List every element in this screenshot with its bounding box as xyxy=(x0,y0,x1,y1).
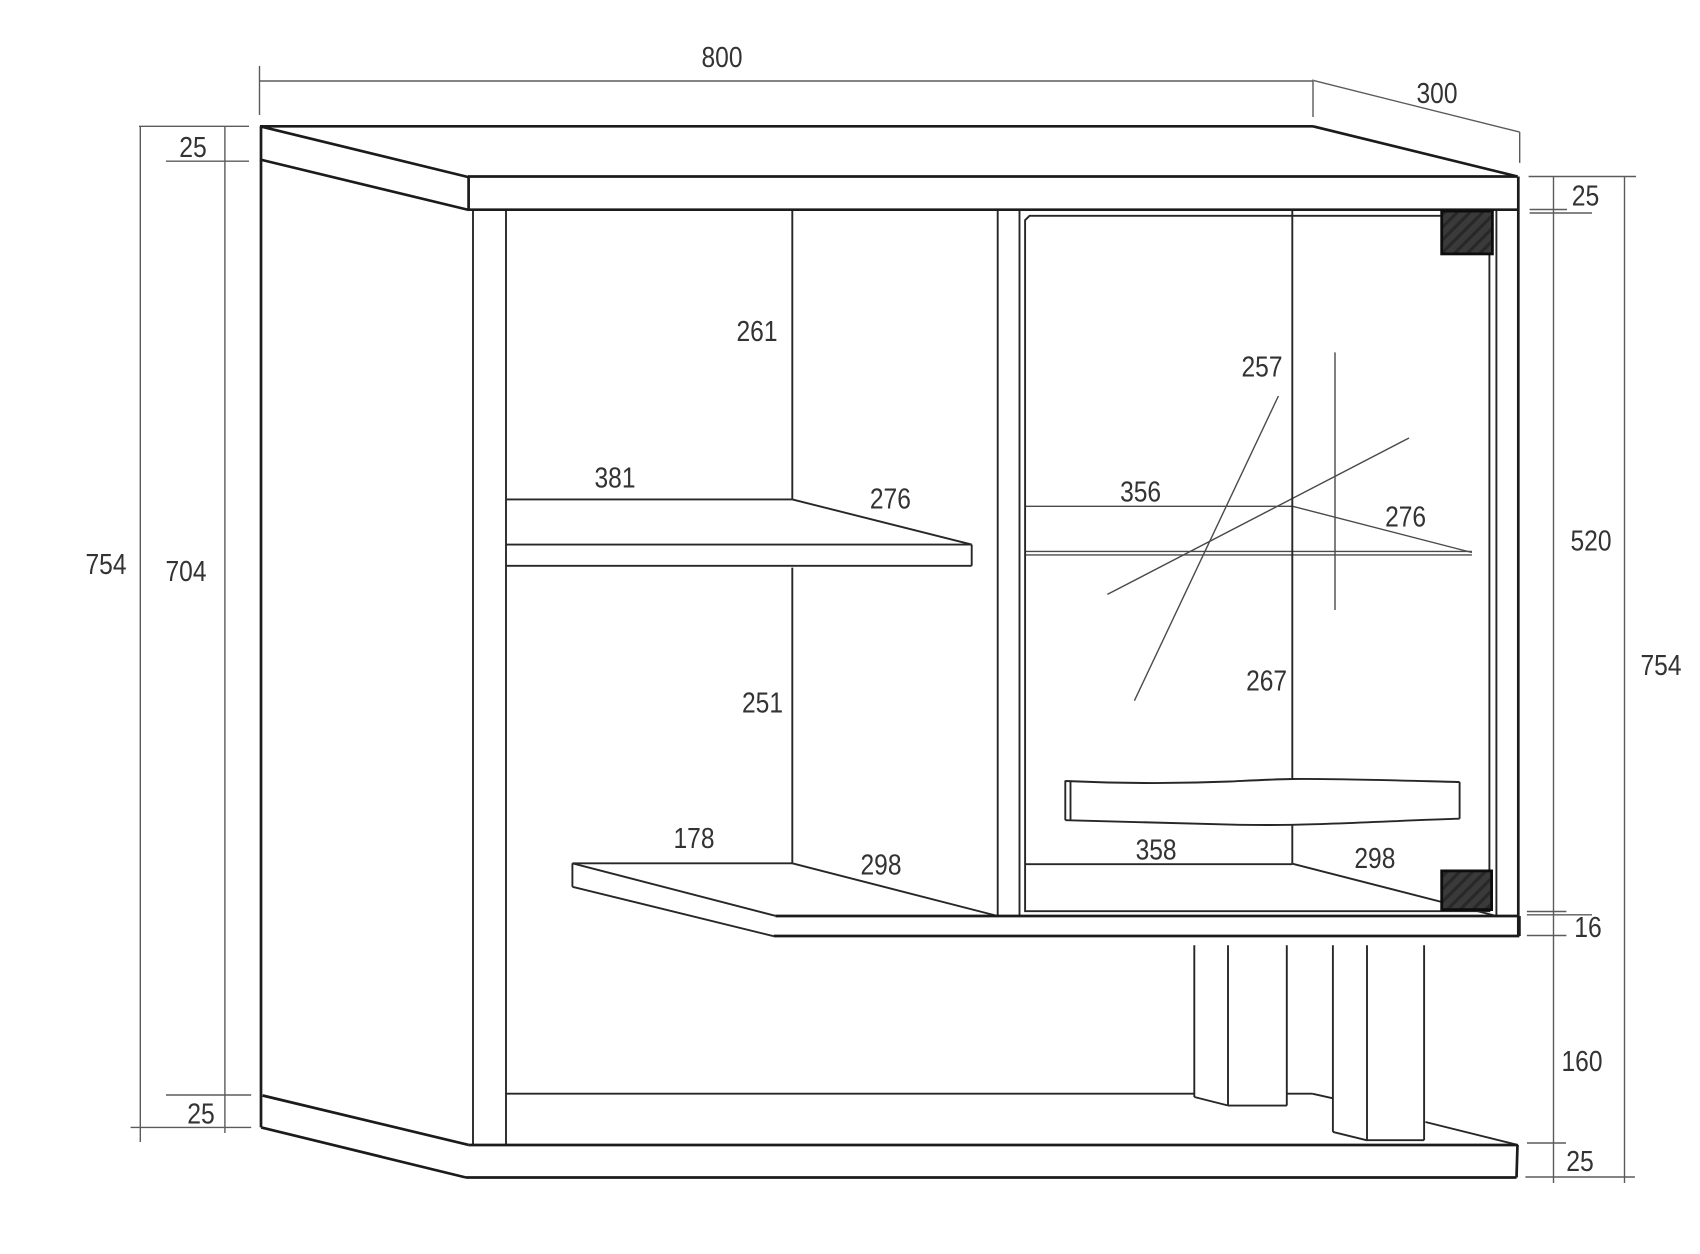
svg-text:381: 381 xyxy=(595,463,636,495)
svg-text:25: 25 xyxy=(1566,1146,1594,1178)
svg-text:358: 358 xyxy=(1136,834,1177,866)
svg-text:754: 754 xyxy=(86,549,127,581)
svg-text:754: 754 xyxy=(1641,650,1682,682)
svg-text:16: 16 xyxy=(1574,912,1602,944)
svg-text:178: 178 xyxy=(674,823,715,855)
svg-text:704: 704 xyxy=(166,556,207,588)
svg-text:520: 520 xyxy=(1571,525,1612,557)
svg-text:300: 300 xyxy=(1417,78,1458,110)
svg-text:298: 298 xyxy=(1354,843,1395,875)
svg-text:298: 298 xyxy=(861,850,902,882)
svg-text:276: 276 xyxy=(1385,501,1426,533)
svg-text:25: 25 xyxy=(187,1099,215,1131)
svg-text:800: 800 xyxy=(702,42,743,74)
svg-text:25: 25 xyxy=(1572,181,1600,213)
svg-text:276: 276 xyxy=(870,483,911,515)
svg-text:261: 261 xyxy=(737,316,778,348)
svg-text:25: 25 xyxy=(179,132,207,164)
svg-text:267: 267 xyxy=(1246,666,1287,698)
svg-text:356: 356 xyxy=(1120,476,1161,508)
svg-text:257: 257 xyxy=(1242,351,1283,383)
svg-text:160: 160 xyxy=(1562,1046,1603,1078)
svg-text:251: 251 xyxy=(742,688,783,720)
